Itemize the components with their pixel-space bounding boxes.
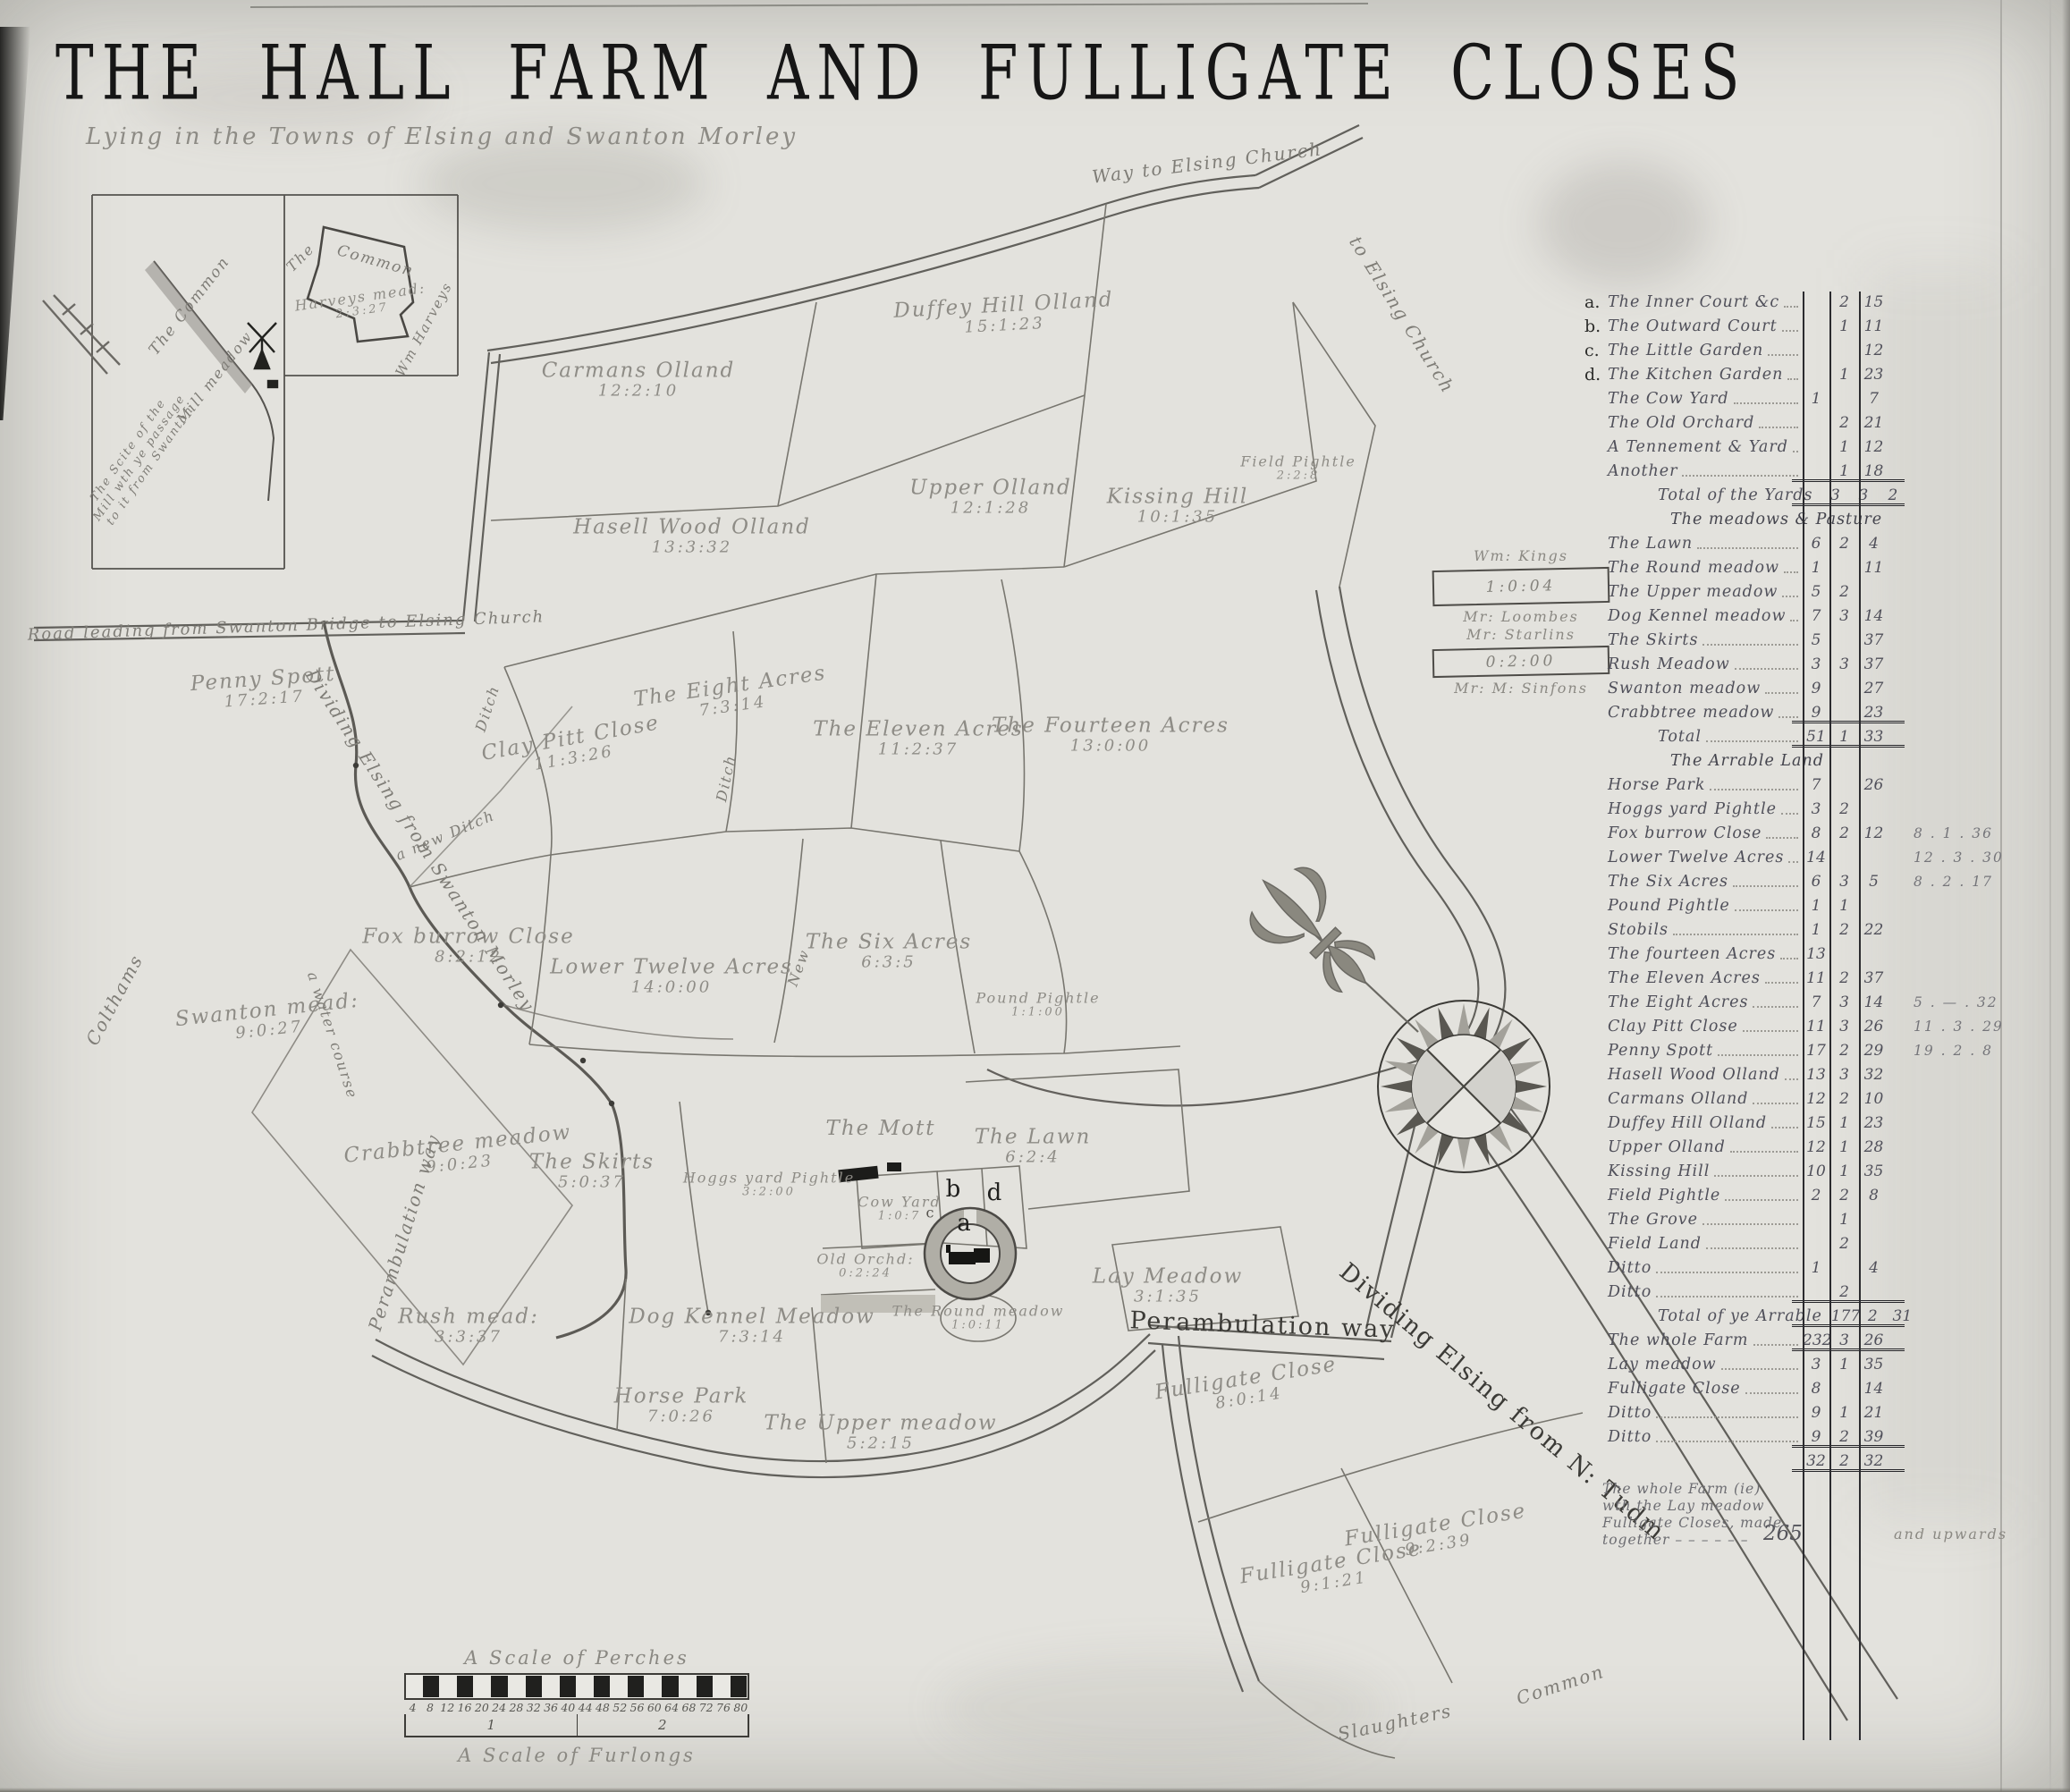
parcel-label: Lower Twelve Acres14:0:00 (550, 955, 793, 997)
parcel-name: The Upper meadow (764, 1411, 997, 1434)
row-leader (1790, 620, 1798, 621)
scale-cell (474, 1675, 490, 1698)
row-acres: 9 (1803, 680, 1829, 698)
row-label: Fox burrow Close (1608, 824, 1762, 843)
table-row: Total 51 1 33 (1584, 723, 2005, 747)
row-acres: 11 (1803, 1018, 1829, 1036)
table-row: The Skirts 5 37 (1584, 626, 2005, 650)
moat-letter-b: b (946, 1176, 961, 1203)
parcel-acreage: 5:2:15 (764, 1435, 997, 1454)
row-acres: 5 (1803, 631, 1829, 650)
table-row: The meadows & Pasture (1584, 505, 2005, 529)
row-acres: 3 (1803, 800, 1829, 819)
row-perches: 37 (1859, 969, 1888, 988)
table-row: Stobils 1 2 22 (1584, 916, 2005, 940)
row-perches: 12 (1859, 824, 1888, 843)
row-leader (1782, 596, 1798, 597)
row-perches: 23 (1859, 704, 1888, 723)
row-leader (1706, 740, 1798, 742)
table-row: Hasell Wood Olland 13 3 32 (1584, 1061, 2005, 1085)
table-row: The Cow Yard 1 7 (1584, 385, 2005, 409)
parcel-acreage: 6:2:4 (975, 1149, 1092, 1168)
scale-number: 52 (612, 1701, 629, 1714)
scale-cell (577, 1675, 593, 1698)
row-perches: 12 (1859, 342, 1888, 360)
row-acres: 9 (1803, 1404, 1829, 1423)
parcel-acreage: 10:1:35 (1107, 509, 1248, 528)
row-label: Lower Twelve Acres (1608, 849, 1784, 867)
row-perches: 4 (1859, 1259, 1888, 1278)
parcel-acreage: 3:1:35 (1093, 1289, 1243, 1307)
row-label: The Old Orchard (1608, 414, 1754, 433)
table-row: Ditto 9 2 39 (1584, 1423, 2005, 1447)
table-row: The Round meadow 1 11 (1584, 554, 2005, 578)
parcel-name: Field Pightle (1240, 453, 1356, 469)
scale-number: 80 (732, 1701, 749, 1714)
table-row: Crabbtree meadow 9 23 (1584, 698, 2005, 723)
row-prefix: b. (1584, 317, 1608, 336)
map-subtitle: Lying in the Towns of Elsing and Swanton… (86, 123, 798, 150)
scale-cell (440, 1675, 456, 1698)
row-acres: 5 (1803, 583, 1829, 602)
row-acres: 232 (1803, 1331, 1829, 1350)
parcel-name: Kissing Hill (1107, 485, 1248, 508)
table-row: Clay Pitt Close 11 3 26 11 . 3 . 29 (1584, 1012, 2005, 1036)
row-roods: 2 (1829, 1042, 1859, 1061)
scale-number: 8 (421, 1701, 438, 1714)
row-roods: 2 (1829, 1428, 1859, 1447)
table-rule (1803, 292, 1804, 1740)
row-label: Ditto (1608, 1428, 1652, 1447)
row-label: The Round meadow (1608, 559, 1779, 578)
parcel-acreage: 7:3:14 (629, 1329, 875, 1348)
row-perches: 23 (1859, 366, 1888, 385)
furlong-mark: 2 (577, 1714, 748, 1736)
row-leader (1779, 716, 1798, 718)
row-leader (1780, 958, 1798, 959)
scale-number: 20 (473, 1701, 490, 1714)
row-acres: 14 (1803, 849, 1829, 867)
row-roods: 1 (1829, 897, 1859, 916)
note-total-acres: 265 (1763, 1522, 1803, 1545)
row-leader (1753, 1103, 1798, 1104)
parcel-label: The Mott (826, 1117, 936, 1140)
scale-cell (662, 1676, 678, 1697)
table-row: Pound Pightle 1 1 (1584, 892, 2005, 916)
table-row: The Grove 1 (1584, 1205, 2005, 1230)
row-roods: 3 (1829, 1018, 1859, 1036)
row-perches: 4 (1859, 535, 1888, 554)
row-roods: 1 (1829, 1404, 1859, 1423)
row-label: The Kitchen Garden (1608, 366, 1783, 385)
moat-letter-a: a (957, 1210, 971, 1237)
parcel-name: Carmans Olland (542, 359, 736, 382)
parcel-label: Lay Meadow3:1:35 (1093, 1264, 1243, 1306)
row-leader (1743, 1030, 1798, 1032)
row-roods: 2 (1829, 1283, 1859, 1302)
row-perches: 21 (1859, 1404, 1888, 1423)
row-perches: 26 (1859, 1331, 1888, 1350)
parcel-label: The Skirts5:0:37 (529, 1150, 655, 1192)
parcel-name: Pound Pightle (976, 990, 1100, 1006)
row-label: The Little Garden (1608, 342, 1763, 360)
row-leader (1733, 885, 1798, 887)
row-roods: 1 (1829, 1138, 1859, 1157)
row-perches: 12 (1859, 438, 1888, 457)
row-perches: 15 (1859, 293, 1888, 312)
table-row: Kissing Hill 10 1 35 (1584, 1157, 2005, 1181)
table-row: The Arrable Land (1584, 747, 2005, 771)
row-leader (1697, 547, 1798, 549)
scale-cell (594, 1676, 610, 1697)
table-row: Ditto 9 1 21 (1584, 1399, 2005, 1423)
note-suffix: and upwards (1894, 1526, 2007, 1543)
table-row: Total of the Yards 3 3 2 (1584, 481, 2005, 505)
row-label: Clay Pitt Close (1608, 1018, 1738, 1036)
row-label: The Eight Acres (1608, 993, 1748, 1012)
scale-number: 64 (663, 1701, 680, 1714)
perches-scale-numbers: 48121620242832364044485256606468727680 (404, 1701, 749, 1714)
parcel-label: The Six Acres6:3:5 (806, 930, 972, 972)
row-roods: 1 (1829, 1356, 1859, 1374)
scale-cell (526, 1676, 542, 1697)
perches-scale-bar (404, 1673, 749, 1700)
parcel-acreage: 14:0:00 (550, 979, 793, 998)
scale-cell (406, 1675, 422, 1698)
table-row: A Tennement & Yard 1 12 (1584, 433, 2005, 457)
row-leader (1784, 306, 1798, 308)
row-label: Pound Pightle (1608, 897, 1730, 916)
scale-cell (543, 1675, 559, 1698)
table-row: a. The Inner Court &c 2 15 (1584, 288, 2005, 312)
table-row: Dog Kennel meadow 7 3 14 (1584, 602, 2005, 626)
row-label: The Skirts (1608, 631, 1698, 650)
row-roods: 1 (1829, 1211, 1859, 1230)
row-perches: 7 (1859, 390, 1888, 409)
row-label: Total of ye Arrable (1658, 1307, 1822, 1326)
row-roods: 2 (1829, 293, 1859, 312)
row-roods: 3 (1848, 486, 1878, 505)
table-row: The Eleven Acres 11 2 37 (1584, 964, 2005, 988)
parcel-acreage: 3:3:37 (398, 1329, 539, 1348)
row-roods: 1 (1829, 317, 1859, 336)
row-perches: 2 (1878, 486, 1907, 505)
parcel-name: The Skirts (529, 1150, 655, 1173)
row-label: Duffey Hill Olland (1608, 1114, 1767, 1133)
row-label: Rush Meadow (1608, 655, 1730, 674)
row-leader (1785, 1078, 1798, 1080)
row-label: Lay meadow (1608, 1356, 1717, 1374)
scale-number: 44 (577, 1701, 594, 1714)
row-extra-measure: 12 . 3 . 30 (1888, 849, 2005, 867)
row-roods: 3 (1829, 655, 1859, 674)
row-leader (1745, 1392, 1798, 1394)
parcel-acreage: 6:3:5 (806, 954, 972, 973)
table-row: Ditto 2 (1584, 1278, 2005, 1302)
scale-cell (560, 1676, 576, 1697)
parcel-acreage: 12:1:28 (909, 500, 1072, 519)
row-roods: 2 (1829, 800, 1859, 819)
row-label: The meadows & Pasture (1670, 511, 1882, 529)
row-label: The Outward Court (1608, 317, 1778, 336)
table-row: The Six Acres 6 3 5 8 . 2 . 17 (1584, 867, 2005, 892)
row-perches: 27 (1859, 680, 1888, 698)
row-perches: 22 (1859, 921, 1888, 940)
row-acres: 3 (1803, 1356, 1829, 1374)
scale-number: 36 (542, 1701, 559, 1714)
row-perches: 37 (1859, 655, 1888, 674)
parcel-label: The Fourteen Acres13:0:00 (992, 714, 1229, 756)
table-rule (1859, 292, 1861, 1740)
parcel-name: Horse Park (614, 1384, 749, 1407)
row-label: The Eleven Acres (1608, 969, 1761, 988)
row-roods: 3 (1829, 607, 1859, 626)
row-perches: 18 (1859, 462, 1888, 481)
row-leader (1725, 1199, 1798, 1201)
row-perches: 11 (1859, 317, 1888, 336)
row-perches: 32 (1859, 1066, 1888, 1085)
parcel-name: The Six Acres (806, 930, 972, 953)
row-label: The fourteen Acres (1608, 945, 1776, 964)
row-perches: 35 (1859, 1162, 1888, 1181)
scale-number: 4 (404, 1701, 421, 1714)
parcel-name: Hoggs yard Pightle (683, 1170, 855, 1186)
scale-cell (423, 1676, 439, 1697)
row-label: The Grove (1608, 1211, 1698, 1230)
row-extra-measure: 11 . 3 . 29 (1888, 1018, 2005, 1036)
row-perches: 14 (1859, 993, 1888, 1012)
parcel-acreage: 3:2:00 (683, 1187, 855, 1200)
parcel-acreage: 13:3:32 (573, 539, 811, 558)
scale-number: 40 (560, 1701, 577, 1714)
row-roods: 2 (1829, 535, 1859, 554)
windmill-icon (248, 323, 277, 387)
furlongs-scale-title: A Scale of Furlongs (404, 1745, 749, 1766)
row-roods: 2 (1829, 1187, 1859, 1205)
table-row: Penny Spott 17 2 29 19 . 2 . 8 (1584, 1036, 2005, 1061)
row-roods: 3 (1829, 993, 1859, 1012)
row-label: Field Land (1608, 1235, 1702, 1254)
row-perches: 5 (1859, 873, 1888, 892)
row-leader (1702, 644, 1798, 646)
row-acres: 6 (1803, 873, 1829, 892)
row-leader (1714, 1175, 1798, 1177)
row-perches: 14 (1859, 1380, 1888, 1399)
parcel-acreage: 0:2:24 (816, 1268, 914, 1281)
row-roods: 2 (1829, 1452, 1859, 1471)
row-leader (1682, 475, 1798, 477)
row-perches: 33 (1859, 728, 1888, 747)
row-label: A Tennement & Yard (1608, 438, 1788, 457)
row-acres: 15 (1803, 1114, 1829, 1133)
table-row: Upper Olland 12 1 28 (1584, 1133, 2005, 1157)
sheet-edge-lines (250, 4, 1368, 7)
row-perches: 29 (1859, 1042, 1888, 1061)
row-acres: 12 (1803, 1138, 1829, 1157)
row-leader (1781, 813, 1798, 815)
owner-acreage-box: 1:0:04 (1432, 567, 1610, 606)
row-label: Ditto (1608, 1259, 1652, 1278)
row-leader (1734, 402, 1798, 404)
row-leader (1784, 571, 1798, 573)
parcel-name: Hasell Wood Olland (573, 515, 811, 538)
row-roods: 1 (1829, 728, 1859, 747)
row-acres: 3 (1803, 655, 1829, 674)
row-extra-measure: 5 . — . 32 (1888, 993, 2005, 1012)
owner-acreage-box: 0:2:00 (1432, 646, 1610, 678)
row-label: Another (1608, 462, 1677, 481)
row-acres: 7 (1803, 993, 1829, 1012)
table-row: 32 2 32 (1584, 1447, 2005, 1471)
parcel-label: Hoggs yard Pightle3:2:00 (683, 1170, 855, 1199)
parcel-acreage: 2:2:8 (1240, 470, 1356, 484)
row-perches: 11 (1859, 559, 1888, 578)
row-label: Hoggs yard Pightle (1608, 800, 1777, 819)
row-leader (1759, 427, 1798, 428)
row-perches: 35 (1859, 1356, 1888, 1374)
row-leader (1788, 861, 1798, 863)
parcel-name: Dog Kennel Meadow (629, 1305, 875, 1328)
row-acres: 12 (1803, 1090, 1829, 1109)
row-prefix: c. (1584, 342, 1608, 360)
row-roods: 2 (1829, 824, 1859, 843)
parcel-name: The Lawn (975, 1125, 1092, 1148)
row-acres: 1 (1803, 559, 1829, 578)
row-leader (1787, 378, 1798, 380)
note-line: wth the Lay meadow (1602, 1498, 1795, 1515)
row-leader (1753, 1344, 1798, 1346)
map-title: THE HALL FARM AND FULLIGATE CLOSES (55, 30, 1748, 118)
scale-number: 12 (439, 1701, 456, 1714)
parcel-acreage: 1:1:00 (976, 1007, 1100, 1020)
map-sheet: THE HALL FARM AND FULLIGATE CLOSES Lying… (0, 0, 2070, 1792)
scale-cell (491, 1676, 507, 1697)
row-acres: 3 (1821, 486, 1848, 505)
row-leader (1656, 1296, 1798, 1298)
parcel-name: The Fourteen Acres (992, 714, 1229, 737)
parcel-name: Upper Olland (909, 476, 1072, 499)
parcel-label: Pound Pightle1:1:00 (976, 990, 1100, 1019)
scale-cell (697, 1676, 713, 1697)
scale-number: 28 (508, 1701, 525, 1714)
row-roods: 2 (1829, 1090, 1859, 1109)
row-roods: 1 (1829, 1162, 1859, 1181)
row-acres: 9 (1803, 1428, 1829, 1447)
row-acres: 11 (1803, 969, 1829, 988)
parcel-acreage: 1:0:11 (892, 1320, 1065, 1333)
scale-cell (457, 1676, 473, 1697)
row-label: The Arrable Land (1670, 752, 1824, 771)
parcel-label: Carmans Olland12:2:10 (542, 359, 736, 401)
table-row: c. The Little Garden 12 (1584, 336, 2005, 360)
scale-number: 16 (456, 1701, 473, 1714)
scale-cell (611, 1675, 627, 1698)
scale-number: 60 (646, 1701, 663, 1714)
parcel-acreage: 13:0:00 (992, 738, 1229, 757)
scale-cell (628, 1676, 644, 1697)
perches-scale-title: A Scale of Perches (404, 1647, 749, 1669)
row-leader (1710, 789, 1798, 790)
table-row: Duffey Hill Olland 15 1 23 (1584, 1109, 2005, 1133)
row-leader (1656, 1272, 1798, 1273)
row-acres: 7 (1803, 776, 1829, 795)
row-label: The whole Farm (1608, 1331, 1749, 1350)
row-label: Carmans Olland (1608, 1090, 1748, 1109)
row-leader (1702, 1223, 1798, 1225)
table-row: Lay meadow 3 1 35 (1584, 1350, 2005, 1374)
row-perches: 14 (1859, 607, 1888, 626)
row-acres: 177 (1831, 1307, 1858, 1326)
row-perches: 23 (1859, 1114, 1888, 1133)
row-roods: 2 (1829, 921, 1859, 940)
row-leader (1730, 1151, 1798, 1153)
row-leader (1765, 692, 1798, 694)
table-row: Swanton meadow 9 27 (1584, 674, 2005, 698)
row-roods: 1 (1829, 462, 1859, 481)
parcel-label: Hasell Wood Olland13:3:32 (573, 515, 811, 557)
row-label: Stobils (1608, 921, 1669, 940)
scale-number: 32 (525, 1701, 542, 1714)
row-acres: 51 (1803, 728, 1829, 747)
table-row: Field Land 2 (1584, 1230, 2005, 1254)
row-prefix: d. (1584, 366, 1608, 385)
scale-bars: A Scale of Perches 481216202428323640444… (404, 1647, 749, 1766)
furlongs-scale-bar: 1 2 (404, 1714, 749, 1737)
furlong-mark: 1 (406, 1714, 577, 1736)
row-leader (1793, 451, 1798, 452)
scale-number: 24 (490, 1701, 507, 1714)
compass-rose (1378, 1001, 1550, 1172)
scale-cell (680, 1675, 696, 1698)
parcel-label: Dog Kennel Meadow7:3:14 (629, 1305, 875, 1347)
row-perches: 26 (1859, 776, 1888, 795)
parcel-label: The Lawn6:2:4 (975, 1125, 1092, 1167)
row-label: Upper Olland (1608, 1138, 1726, 1157)
row-label: Ditto (1608, 1283, 1652, 1302)
row-extra-measure: 8 . 2 . 17 (1888, 873, 2005, 892)
row-acres: 1 (1803, 897, 1829, 916)
table-row: d. The Kitchen Garden 1 23 (1584, 360, 2005, 385)
row-label: Hasell Wood Olland (1608, 1066, 1780, 1085)
parcel-acreage: 5:0:37 (529, 1174, 655, 1193)
row-leader (1656, 1416, 1798, 1418)
table-row: Rush Meadow 3 3 37 (1584, 650, 2005, 674)
row-acres: 1 (1803, 390, 1829, 409)
scale-number: 72 (697, 1701, 714, 1714)
row-leader (1771, 1127, 1798, 1128)
parcel-label: Rush mead:3:3:37 (398, 1305, 539, 1347)
parcel-name: Old Orchd: (816, 1251, 914, 1267)
row-leader (1768, 354, 1798, 356)
row-label: Total of the Yards (1658, 486, 1812, 505)
scale-number: 68 (680, 1701, 697, 1714)
row-label: Dog Kennel meadow (1608, 607, 1786, 626)
row-leader (1721, 1368, 1798, 1370)
row-acres: 10 (1803, 1162, 1829, 1181)
row-leader (1753, 1006, 1798, 1008)
row-leader (1735, 909, 1798, 911)
scale-cell (645, 1675, 661, 1698)
parcel-name: Lay Meadow (1093, 1264, 1243, 1288)
parcel-acreage: 12:2:10 (542, 383, 736, 402)
parcel-label: The Round meadow1:0:11 (892, 1303, 1065, 1332)
row-roods: 3 (1829, 1331, 1859, 1350)
row-label: The Lawn (1608, 535, 1693, 554)
parcel-acreage: 7:0:26 (614, 1408, 749, 1427)
row-roods: 2 (1829, 583, 1859, 602)
table-row: The Eight Acres 7 3 14 5 . — . 32 (1584, 988, 2005, 1012)
row-acres: 32 (1803, 1452, 1829, 1471)
